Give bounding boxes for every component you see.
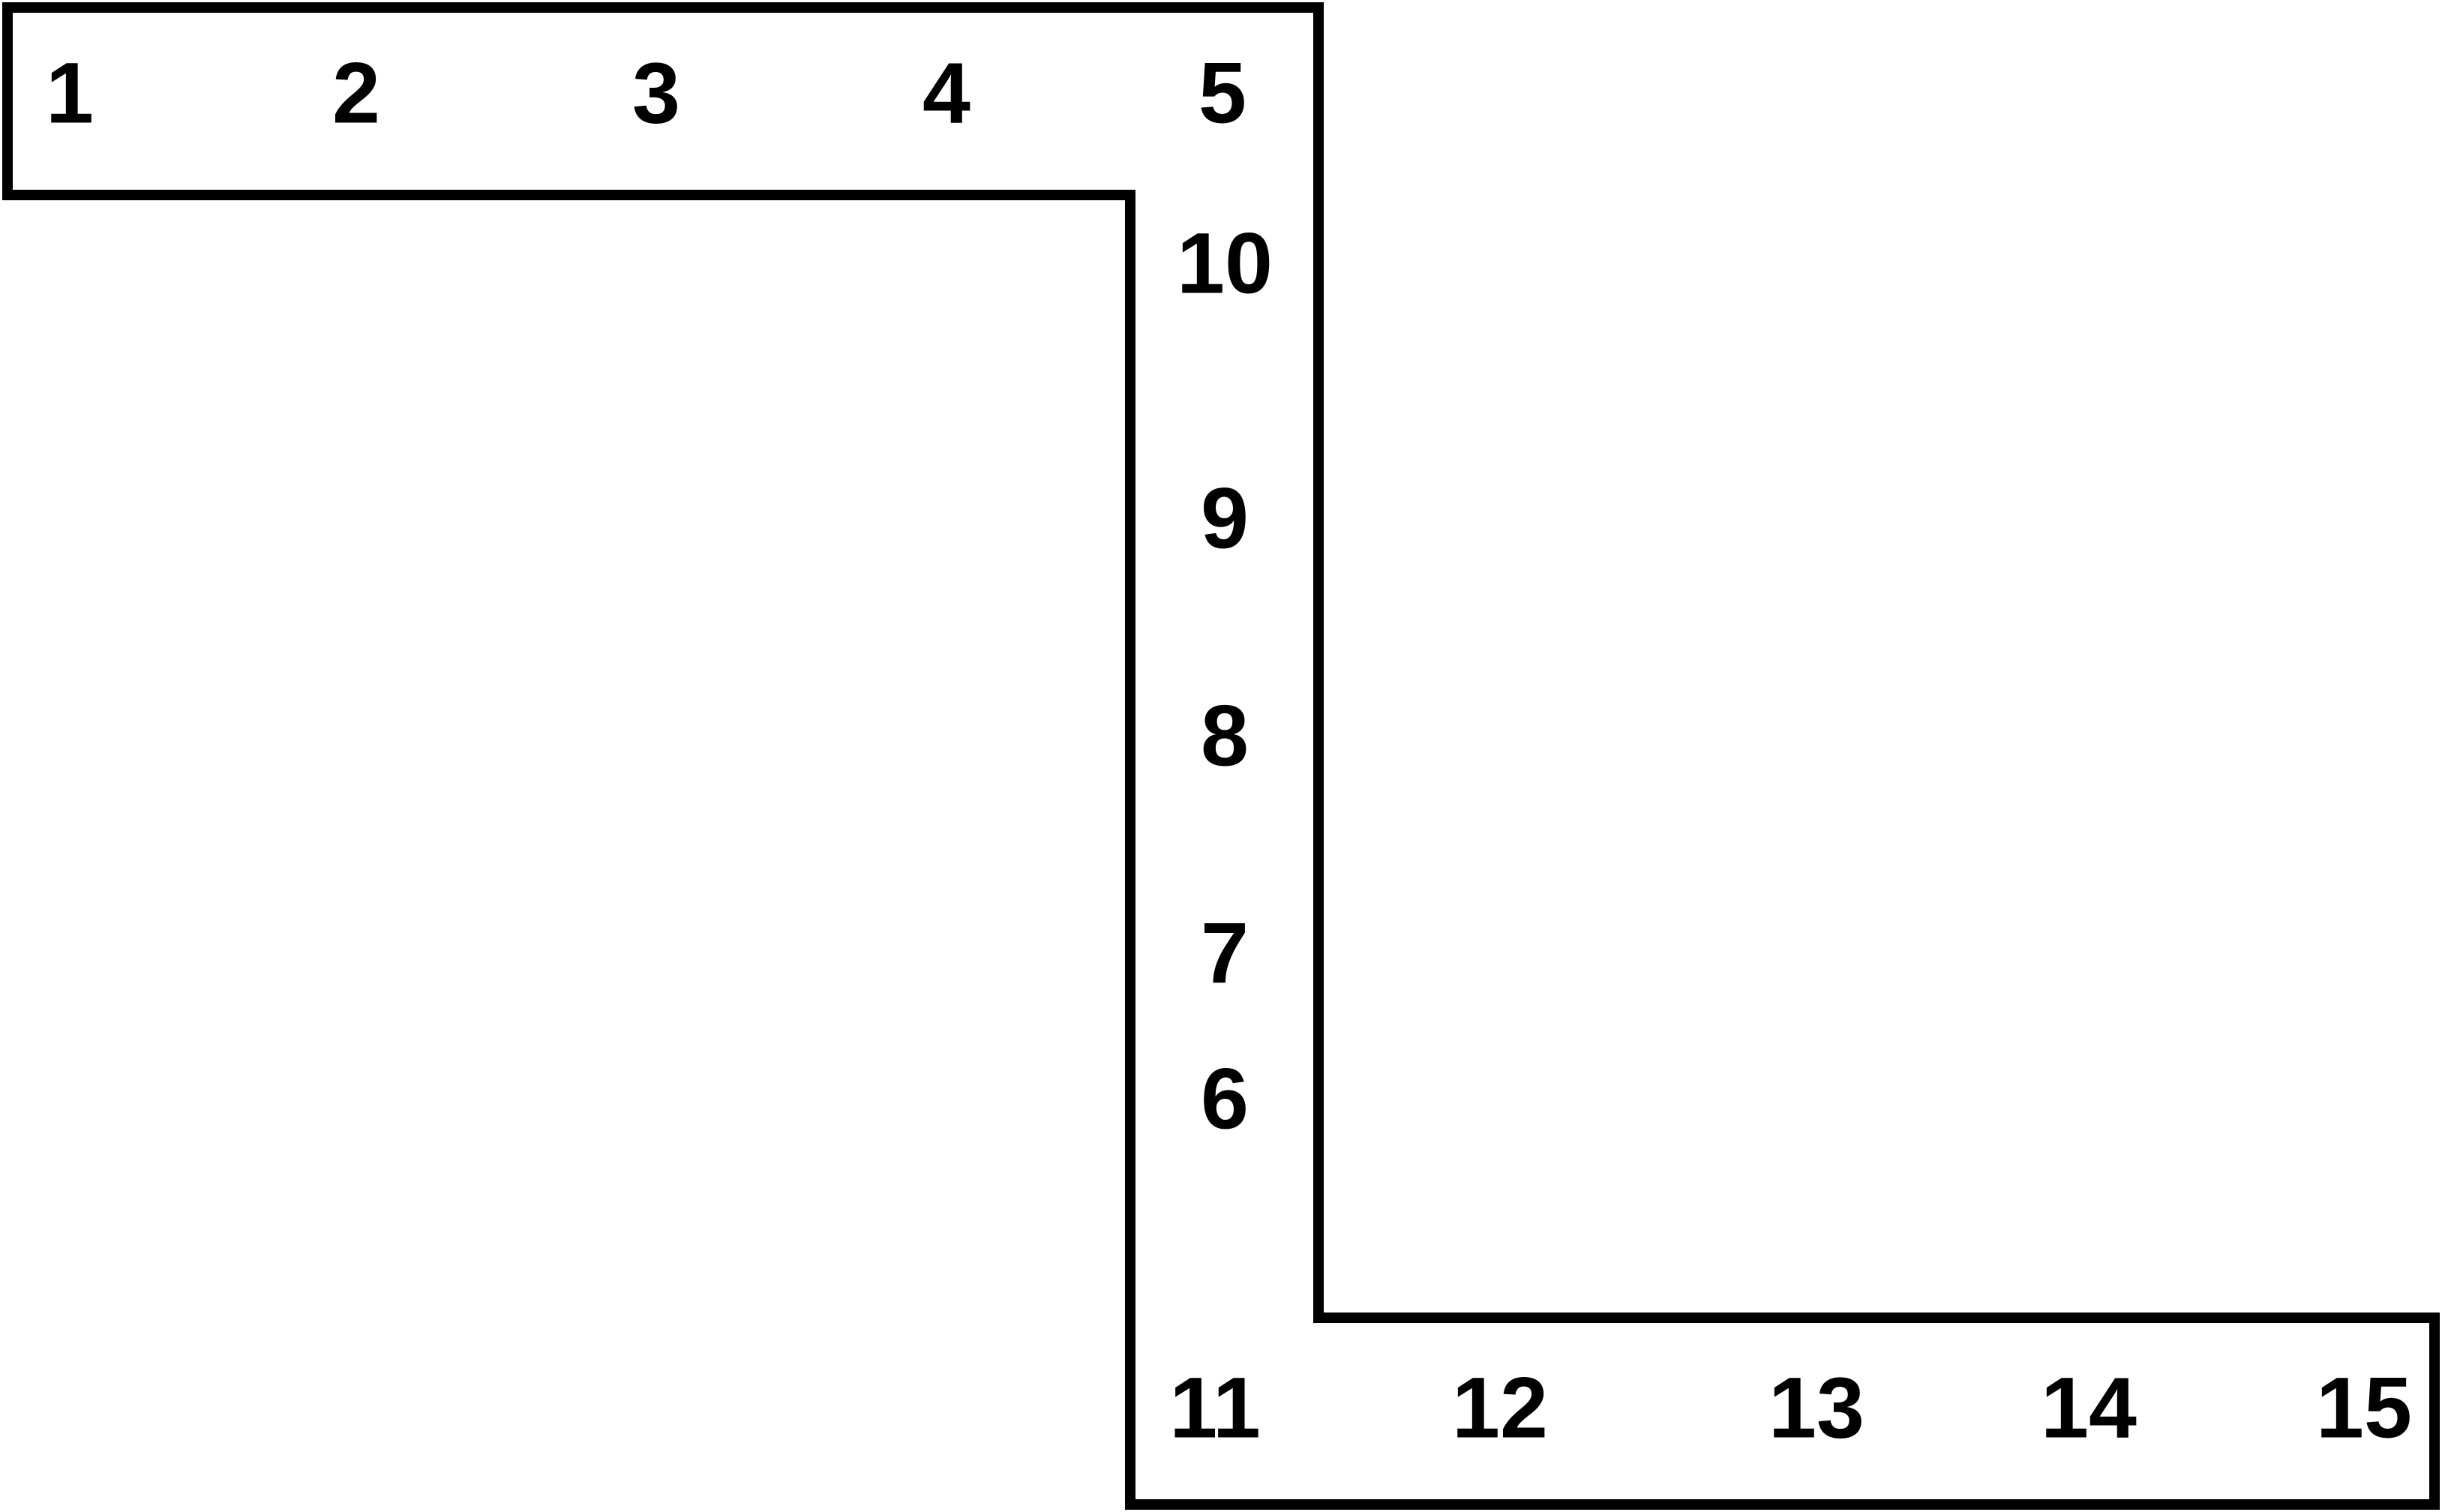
label-11: 11 <box>1169 1366 1261 1452</box>
label-5: 5 <box>1198 51 1246 137</box>
label-10: 10 <box>1177 221 1273 307</box>
label-14: 14 <box>2041 1366 2137 1452</box>
label-9: 9 <box>1201 476 1249 562</box>
label-12: 12 <box>1452 1366 1548 1452</box>
label-7: 7 <box>1201 911 1249 997</box>
label-1: 1 <box>46 51 94 137</box>
label-2: 2 <box>332 51 380 137</box>
label-3: 3 <box>632 51 680 137</box>
label-4: 4 <box>922 51 970 137</box>
label-6: 6 <box>1201 1057 1249 1143</box>
label-15: 15 <box>2316 1366 2412 1452</box>
numbered-path-diagram: 1 2 3 4 5 10 9 8 7 6 11 12 13 14 15 <box>0 0 2442 1512</box>
label-13: 13 <box>1768 1366 1864 1452</box>
label-8: 8 <box>1201 694 1249 780</box>
